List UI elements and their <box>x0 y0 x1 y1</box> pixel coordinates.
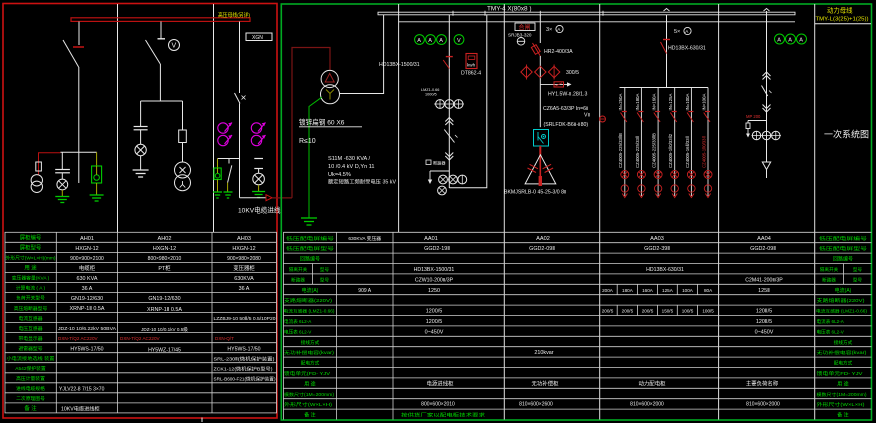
svg-text:Uk=4.5%: Uk=4.5% <box>328 172 351 178</box>
svg-text:YJLV22-8 7/15 3×70: YJLV22-8 7/15 3×70 <box>59 386 105 392</box>
svg-text:CZ4005-16Ⅱ/33Ⅱ: CZ4005-16Ⅱ/33Ⅱ <box>685 136 690 168</box>
svg-text:电流(A): 电流(A) <box>835 287 852 294</box>
svg-text:630KVA: 630KVA <box>234 276 254 282</box>
svg-text:10 /0.4 kV D,Yn 11: 10 /0.4 kV D,Yn 11 <box>328 164 375 170</box>
svg-text:电压表 6L2-V: 电压表 6L2-V <box>284 328 312 335</box>
svg-text:1250: 1250 <box>428 288 440 294</box>
svg-text:模数尺寸(1M=200mm): 模数尺寸(1M=200mm) <box>817 391 868 398</box>
svg-text:AA04: AA04 <box>757 236 771 242</box>
svg-text:810×600×2000: 810×600×2000 <box>746 401 780 407</box>
svg-text:LZZBJ9-10 50Ⅱ/5 0.5/10P20: LZZBJ9-10 50Ⅱ/5 0.5/10P20 <box>214 316 277 321</box>
svg-text:SRL-230Ⅱ(微机保护装置): SRL-230Ⅱ(微机保护装置) <box>214 355 276 362</box>
svg-text:3×: 3× <box>546 27 552 33</box>
svg-text:电压表 6L2-V: 电压表 6L2-V <box>817 328 845 335</box>
svg-text:动力母线: 动力母线 <box>827 6 853 15</box>
svg-text:IN=180A: IN=180A <box>635 94 640 111</box>
svg-text:馈电单元(FD- YJV: 馈电单元(FD- YJV <box>284 370 330 377</box>
svg-text:高压计量装置: 高压计量装置 <box>16 375 45 382</box>
svg-text:一次系统图: 一次系统图 <box>824 129 869 140</box>
svg-text:DXN-T/Q2 AC220V: DXN-T/Q2 AC220V <box>58 336 99 341</box>
svg-text:无功补偿电容(kvar): 无功补偿电容(kvar) <box>284 349 335 356</box>
svg-text:按供货厂家以配电柜技术要求: 按供货厂家以配电柜技术要求 <box>401 412 486 419</box>
svg-text:A: A <box>799 38 803 44</box>
svg-text:0~450V: 0~450V <box>425 329 444 335</box>
svg-text:配电方式: 配电方式 <box>301 360 320 367</box>
svg-text:0~450V: 0~450V <box>755 329 774 335</box>
svg-text:XRNP-1Ⅱ 0.5A: XRNP-1Ⅱ 0.5A <box>69 306 104 312</box>
svg-text:外形尺寸(W×L×H): 外形尺寸(W×L×H) <box>817 401 866 408</box>
svg-text:A: A <box>428 38 432 44</box>
svg-text:HD13BX-630/31: HD13BX-630/31 <box>646 267 684 273</box>
svg-text:200A: 200A <box>602 288 614 293</box>
svg-text:模数尺寸(1M=200mm): 模数尺寸(1M=200mm) <box>284 391 335 398</box>
svg-text:10KV电缆进线柜: 10KV电缆进线柜 <box>61 405 100 413</box>
svg-text:回路编号: 回路编号 <box>833 256 853 263</box>
svg-text:630 KVA: 630 KVA <box>77 276 98 282</box>
svg-text:型号: 型号 <box>320 276 330 283</box>
svg-text:电流表 6L2-A: 电流表 6L2-A <box>284 318 312 325</box>
svg-text:C2M41-200Ⅱ/3P: C2M41-200Ⅱ/3P <box>745 277 783 283</box>
svg-text:SRJB3-320: SRJB3-320 <box>508 33 532 38</box>
svg-text:300/5: 300/5 <box>566 70 579 76</box>
svg-text:备 注: 备 注 <box>304 412 315 419</box>
svg-text:断路器: 断路器 <box>433 160 446 167</box>
svg-text:HD13BX-1500/31: HD13BX-1500/31 <box>414 267 455 273</box>
svg-text:1200/5: 1200/5 <box>426 319 443 325</box>
svg-text:电流(A): 电流(A) <box>302 287 319 294</box>
svg-text:GGD2-19Ⅱ: GGD2-19Ⅱ <box>424 246 450 252</box>
svg-text:36 A: 36 A <box>82 286 93 292</box>
svg-text:镀锌扁钢 60 X6: 镀锌扁钢 60 X6 <box>299 118 345 127</box>
svg-text:810×600×2600: 810×600×2600 <box>519 401 553 407</box>
svg-text:200/5: 200/5 <box>642 309 654 314</box>
svg-text:型号: 型号 <box>320 266 330 273</box>
svg-text:800×980×2010: 800×980×2010 <box>148 256 182 262</box>
svg-text:无功补偿电容(kvar): 无功补偿电容(kvar) <box>817 349 868 356</box>
svg-text:A: A <box>439 38 443 44</box>
svg-text:A: A <box>788 38 792 44</box>
svg-text:S11M -630 KVA /: S11M -630 KVA / <box>328 156 371 162</box>
svg-text:CZ4005-225/33ⅡB: CZ4005-225/33ⅡB <box>618 133 623 168</box>
svg-text:CZ4005-1Ⅱ0/33Ⅱ2: CZ4005-1Ⅱ0/33Ⅱ2 <box>668 133 673 168</box>
svg-text:合闸: 合闸 <box>519 24 531 32</box>
svg-text:备 注: 备 注 <box>24 404 37 412</box>
svg-text:900×980×2080: 900×980×2080 <box>227 256 261 262</box>
svg-text:用 途: 用 途 <box>24 264 37 272</box>
svg-text:909 A: 909 A <box>358 288 371 294</box>
svg-text:XGN: XGN <box>252 35 263 41</box>
svg-text:HR2-400/3A: HR2-400/3A <box>544 49 573 55</box>
svg-text:PT柜: PT柜 <box>158 264 171 272</box>
svg-text:负荷开关型号: 负荷开关型号 <box>16 295 45 302</box>
svg-text:MP 200: MP 200 <box>746 114 761 119</box>
svg-text:避雷器型号: 避雷器型号 <box>19 345 43 352</box>
svg-text:DXN-T/Q2 AC220V: DXN-T/Q2 AC220V <box>120 336 161 341</box>
svg-text:DXN-Q/T: DXN-Q/T <box>215 336 234 341</box>
svg-text:AA01: AA01 <box>424 236 438 242</box>
svg-text:5×: 5× <box>674 29 680 35</box>
svg-text:TMY-L(3(25)+1(25)): TMY-L(3(25)+1(25)) <box>816 17 869 23</box>
svg-text:电流互感器: 电流互感器 <box>19 315 43 322</box>
svg-text:电压互感器: 电压互感器 <box>19 325 43 332</box>
svg-text:150/5: 150/5 <box>662 309 674 314</box>
svg-text:IN=160A: IN=160A <box>652 94 657 111</box>
svg-text:V: V <box>457 38 461 44</box>
svg-text:GN19-12/630: GN19-12/630 <box>71 296 103 302</box>
svg-text:AH01: AH01 <box>80 236 94 242</box>
svg-text:LMZ1-0.66: LMZ1-0.66 <box>421 88 439 92</box>
svg-text:10KV电缆进线: 10KV电缆进线 <box>238 206 281 215</box>
svg-text:低压配电屏型号: 低压配电屏型号 <box>286 245 335 252</box>
svg-text:(SRLFDK-B6Ⅱ-Ⅱ80): (SRLFDK-B6Ⅱ-Ⅱ80) <box>544 122 589 128</box>
svg-text:120Ⅱ/5: 120Ⅱ/5 <box>756 319 772 325</box>
svg-text:HXGN-12: HXGN-12 <box>153 246 176 252</box>
svg-text:动力配电柜: 动力配电柜 <box>639 379 667 387</box>
svg-text:电流互感器 (LMZ1-0.66): 电流互感器 (LMZ1-0.66) <box>284 308 336 315</box>
svg-text:GN19-12/630: GN19-12/630 <box>148 296 180 302</box>
svg-text:HY1.5W-Ⅱ.28/1.3: HY1.5W-Ⅱ.28/1.3 <box>548 92 587 98</box>
svg-text:GGD2-09Ⅱ: GGD2-09Ⅱ <box>750 246 776 252</box>
svg-text:用 途: 用 途 <box>304 380 315 387</box>
svg-text:SRL-B600-F21(微机保护装置): SRL-B600-F21(微机保护装置) <box>214 375 276 382</box>
svg-text:HY5WS-17/50: HY5WS-17/50 <box>227 346 260 352</box>
svg-text:200/5: 200/5 <box>602 309 614 314</box>
svg-text:180A: 180A <box>622 288 634 293</box>
svg-text:进线电缆规格: 进线电缆规格 <box>16 385 45 392</box>
svg-text:CZ4005-225/33Ⅱ: CZ4005-225/33Ⅱ <box>635 136 640 168</box>
svg-text:二次原理图号: 二次原理图号 <box>16 395 45 402</box>
svg-text:IN=100A: IN=100A <box>685 94 690 111</box>
svg-text:主要负荷名称: 主要负荷名称 <box>746 379 779 387</box>
svg-text:型号: 型号 <box>853 276 863 283</box>
svg-text:800×600×2010: 800×600×2010 <box>421 401 455 407</box>
svg-text:小电流接地选线 装置: 小电流接地选线 装置 <box>7 355 56 362</box>
svg-text:外形尺寸(W×L×H): 外形尺寸(W×L×H) <box>284 401 333 408</box>
svg-text:80A: 80A <box>704 288 713 293</box>
svg-text:CZW10-200Ⅱ/3P: CZW10-200Ⅱ/3P <box>415 277 454 283</box>
svg-text:HY5WS-17/50: HY5WS-17/50 <box>70 346 103 352</box>
svg-text:CZ4005-225/33ⅡB: CZ4005-225/33ⅡB <box>652 133 657 168</box>
svg-text:低压配电屏编号: 低压配电屏编号 <box>819 235 868 242</box>
svg-text:ZCK1-12(微机保护B型号): ZCK1-12(微机保护B型号) <box>214 365 274 372</box>
svg-text:电缆柜: 电缆柜 <box>79 264 96 272</box>
svg-text:HD13BX-630/31: HD13BX-630/31 <box>668 46 706 52</box>
svg-text:断路器: 断路器 <box>291 276 305 283</box>
svg-text:用 途: 用 途 <box>837 380 848 387</box>
svg-text:电流互感器 (LMZ1-0.66): 电流互感器 (LMZ1-0.66) <box>816 308 868 315</box>
svg-text:额定短路工频耐受电压 35 kV: 额定短路工频耐受电压 35 kV <box>328 178 396 186</box>
svg-text:810×600×2000: 810×600×2000 <box>630 401 664 407</box>
svg-text:200/5: 200/5 <box>622 309 634 314</box>
svg-text:CZ4005-1Ⅱ0/33Ⅱ: CZ4005-1Ⅱ0/33Ⅱ <box>701 136 706 168</box>
svg-text:JDZ-10 10/6.22kV 50BVA: JDZ-10 10/6.22kV 50BVA <box>58 326 117 331</box>
svg-text:GGD2-09Ⅱ: GGD2-09Ⅱ <box>529 246 555 252</box>
svg-text:高压母线(另详): 高压母线(另详) <box>218 11 250 19</box>
svg-text:100A: 100A <box>682 288 694 293</box>
svg-text:隔离开关: 隔离开关 <box>820 266 839 273</box>
svg-text:接线方式: 接线方式 <box>834 339 853 346</box>
svg-text:HD13BX-1500/31: HD13BX-1500/31 <box>379 62 420 68</box>
svg-text:125Ⅱ: 125Ⅱ <box>758 288 770 294</box>
svg-text:隔离开关: 隔离开关 <box>289 266 308 273</box>
svg-text:变压器柜: 变压器柜 <box>233 264 255 272</box>
svg-text:JDZ-10 10/0.1kV 0.5级: JDZ-10 10/0.1kV 0.5级 <box>141 326 188 333</box>
svg-text:100/5: 100/5 <box>682 309 694 314</box>
svg-text:馈电单元FD- YJV: 馈电单元FD- YJV <box>817 370 863 377</box>
svg-text:IN=100A: IN=100A <box>701 94 706 111</box>
svg-text:屏柜编号: 屏柜编号 <box>20 234 42 242</box>
svg-text:R≤10: R≤10 <box>299 138 316 145</box>
svg-text:TMY-4 X(80x8 ): TMY-4 X(80x8 ) <box>487 6 532 13</box>
svg-text:CZ6A5-63/3P In=6Ⅱ: CZ6A5-63/3P In=6Ⅱ <box>543 106 589 112</box>
svg-text:无功补偿柜: 无功补偿柜 <box>532 379 560 387</box>
svg-text:160A: 160A <box>642 288 654 293</box>
svg-text:支路熔断器(220V): 支路熔断器(220V) <box>817 297 866 304</box>
svg-text:电源进线柜: 电源进线柜 <box>427 379 455 387</box>
svg-text:AH03: AH03 <box>237 236 251 242</box>
svg-text:630KVA 变压器: 630KVA 变压器 <box>348 235 381 242</box>
svg-text:低压配电屏编号: 低压配电屏编号 <box>286 235 335 242</box>
svg-text:HY5WZ-17/45: HY5WZ-17/45 <box>148 347 181 353</box>
svg-text:36 A: 36 A <box>239 286 250 292</box>
svg-text:XRNP-1Ⅱ 0.5A: XRNP-1Ⅱ 0.5A <box>147 307 182 313</box>
svg-text:210kvar: 210kvar <box>534 350 553 356</box>
svg-text:低压配电屏型号: 低压配电屏型号 <box>819 245 868 252</box>
svg-text:1000/5: 1000/5 <box>425 93 437 97</box>
svg-text:计算电流 ( A ): 计算电流 ( A ) <box>16 285 46 292</box>
svg-text:接线方式: 接线方式 <box>301 339 320 346</box>
svg-text:VⅡ: VⅡ <box>584 113 590 119</box>
svg-text:型号: 型号 <box>853 266 863 273</box>
svg-text:125A: 125A <box>662 288 674 293</box>
svg-text:带电显示器: 带电显示器 <box>19 335 43 342</box>
svg-text:回路编号: 回路编号 <box>300 256 320 263</box>
svg-text:GGD2-39Ⅱ: GGD2-39Ⅱ <box>644 246 670 252</box>
svg-text:IN=125A: IN=125A <box>668 94 673 111</box>
svg-text:高压熔断器型号: 高压熔断器型号 <box>14 305 48 312</box>
svg-text:外形尺寸(W×L×H)(mm): 外形尺寸(W×L×H)(mm) <box>6 255 57 262</box>
svg-text:变压器容量(KVA ): 变压器容量(KVA ) <box>12 275 50 282</box>
svg-text:支路熔断器(220V): 支路熔断器(220V) <box>284 297 333 304</box>
svg-text:BKMJSRLB-0 45-25-3/0 8Ⅱ: BKMJSRLB-0 45-25-3/0 8Ⅱ <box>504 190 567 196</box>
svg-text:kwh: kwh <box>467 63 476 68</box>
svg-text:IN=250A: IN=250A <box>618 94 623 111</box>
svg-text:屏柜型号: 屏柜型号 <box>20 244 42 252</box>
svg-text:A: A <box>417 38 421 44</box>
svg-text:HXGN-12: HXGN-12 <box>232 246 255 252</box>
svg-text:HXGN-12: HXGN-12 <box>75 246 98 252</box>
svg-text:120Ⅱ/5: 120Ⅱ/5 <box>756 309 772 315</box>
svg-text:断路器: 断路器 <box>822 276 836 283</box>
svg-text:A542保护装置: A542保护装置 <box>15 365 46 372</box>
svg-text:V: V <box>172 43 177 50</box>
svg-text:AH02: AH02 <box>158 236 172 242</box>
svg-text:DT862-4: DT862-4 <box>461 71 481 77</box>
svg-text:900×900×2100: 900×900×2100 <box>70 256 104 262</box>
svg-text:配电方式: 配电方式 <box>834 360 853 367</box>
svg-text:备 注: 备 注 <box>837 412 848 419</box>
svg-text:100/5: 100/5 <box>702 309 714 314</box>
svg-text:A: A <box>777 38 781 44</box>
svg-text:电流表 6L2-A: 电流表 6L2-A <box>817 318 845 325</box>
svg-text:AA02: AA02 <box>536 236 550 242</box>
svg-text:AA03: AA03 <box>650 236 664 242</box>
svg-text:1200/5: 1200/5 <box>426 309 443 315</box>
